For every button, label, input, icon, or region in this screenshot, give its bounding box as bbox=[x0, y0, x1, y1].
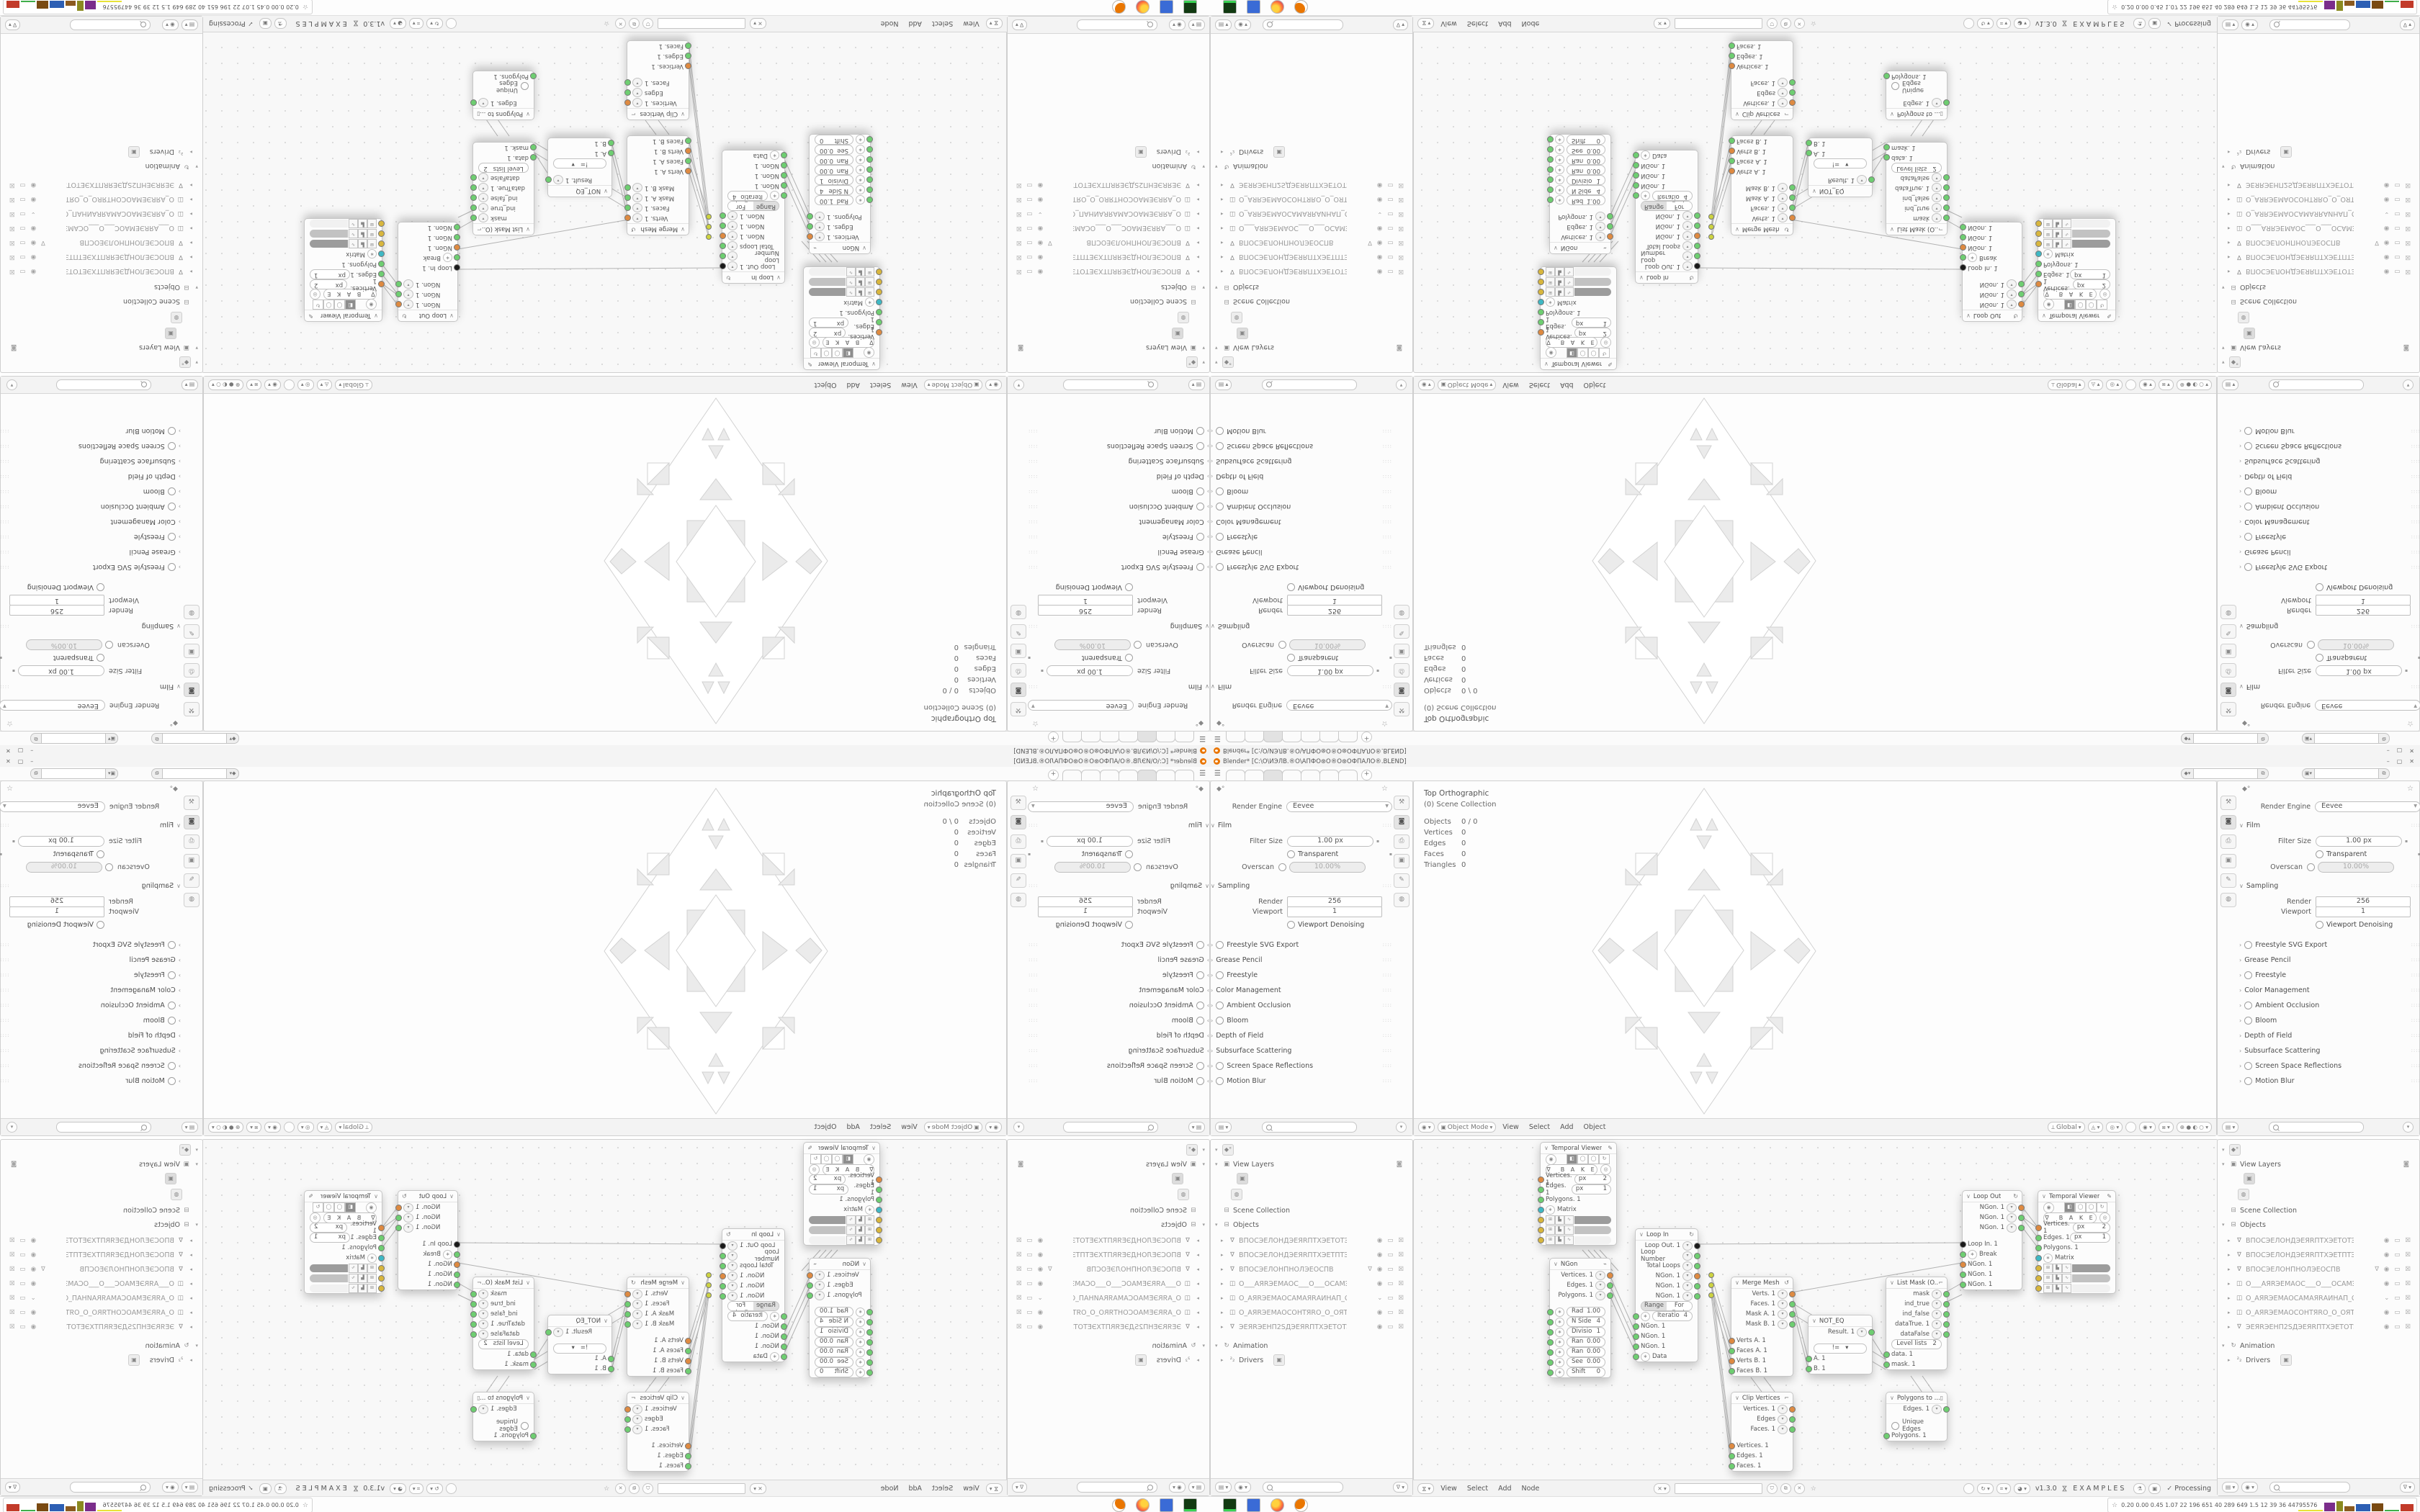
pin-icon[interactable]: ☆ bbox=[1811, 1485, 1816, 1493]
disable-viewport-icon[interactable]: ▭ bbox=[20, 1323, 26, 1331]
collapsed-section[interactable]: Motion Blur bbox=[1154, 428, 1193, 436]
overscan-checkbox[interactable] bbox=[1278, 863, 1286, 871]
render-engine-dropdown[interactable]: Eevee▾ bbox=[2315, 801, 2420, 812]
scene-icon[interactable]: ✎ bbox=[184, 873, 200, 888]
scene-icon[interactable]: ✎ bbox=[1010, 873, 1026, 888]
object-name[interactable]: О_АЯRЭЕМАОСОНТЯRО_О_ОЯТН- bbox=[1073, 1309, 1181, 1317]
filter-button[interactable]: ∇ ▾ bbox=[1012, 19, 1027, 30]
sampling-section[interactable]: Sampling bbox=[2246, 623, 2278, 631]
collapsed-section[interactable]: Depth of Field bbox=[2244, 473, 2292, 481]
node-ngon[interactable]: ∨NGon⌁Vertices. 1▾Edges. 1▾Polygons. 1▾∗… bbox=[1549, 1258, 1611, 1378]
exclude-icon[interactable]: ☒ bbox=[2405, 225, 2411, 232]
disable-viewport-icon[interactable]: ▭ bbox=[1027, 196, 1033, 203]
hide-icon[interactable]: ⌄ bbox=[31, 210, 36, 217]
object-name[interactable]: ЭЕЯRЭЕНП2SДЭЕЯRПТХЭЕТОТЭЕ bbox=[2246, 1323, 2354, 1331]
disable-viewport-icon[interactable]: ▭ bbox=[20, 1309, 26, 1316]
node-loop-in[interactable]: ∨Loop In↻Loop Out. 1▾Loop Number▾Total L… bbox=[722, 150, 785, 284]
collapsed-section[interactable]: Freestyle bbox=[1162, 534, 1193, 541]
world-icon[interactable]: ◍ bbox=[184, 605, 200, 619]
collapsed-section[interactable]: Freestyle SVG Export bbox=[93, 564, 165, 572]
collapsed-section[interactable]: Freestyle bbox=[1227, 971, 1258, 979]
node-loop-in[interactable]: ∨Loop In↻Loop Out. 1▾Loop Number▾Total L… bbox=[1635, 150, 1698, 284]
collapsed-section[interactable]: Freestyle SVG Export bbox=[2255, 564, 2327, 572]
collapsed-section[interactable]: Screen Space Reflections bbox=[1107, 443, 1193, 451]
exclude-icon[interactable]: ☒ bbox=[1016, 1309, 1022, 1316]
node-editor[interactable]: ∨Temporal Viewer✎◉◧◯◯↻∇ B A K E◎Vertices… bbox=[1413, 1139, 2218, 1481]
editor-type-button[interactable]: ◉ ▾ bbox=[985, 379, 1002, 390]
node-menu-node[interactable]: Node bbox=[1522, 1485, 1540, 1493]
collapsed-section[interactable]: Depth of Field bbox=[2244, 1032, 2292, 1040]
node-tree-name-field[interactable] bbox=[658, 1483, 745, 1494]
drivers-label[interactable]: Drivers bbox=[1157, 148, 1181, 156]
collapsed-section[interactable]: Depth of Field bbox=[1157, 473, 1204, 481]
collapsed-section[interactable]: Freestyle SVG Export bbox=[1121, 564, 1193, 572]
transparent-checkbox[interactable] bbox=[2316, 850, 2323, 858]
render-samples-field[interactable]: 256 bbox=[2316, 606, 2411, 616]
add-workspace-button[interactable]: + bbox=[1361, 732, 1372, 742]
render-engine-dropdown[interactable]: Eevee▾ bbox=[1286, 701, 1392, 711]
node-temporal-viewer[interactable]: ∨Temporal Viewer✎◉◧◯◯↻∇ B A K E◎Vertices… bbox=[304, 1190, 382, 1294]
section-checkbox[interactable] bbox=[1216, 1062, 1224, 1070]
collapsed-section[interactable]: Bloom bbox=[1227, 488, 1248, 496]
node-temporal-viewer[interactable]: ∨Temporal Viewer✎◉◧◯◯↻∇ B A K E◎Vertices… bbox=[304, 218, 382, 322]
view-layers-label[interactable]: View Layers bbox=[2240, 344, 2281, 352]
world-icon[interactable]: ◍ bbox=[171, 1189, 182, 1200]
filter-size-field[interactable]: 1.00 px bbox=[1287, 836, 1373, 847]
hide-icon[interactable]: ◉ bbox=[1038, 1237, 1043, 1244]
copy-icon[interactable]: ⧉ bbox=[30, 734, 41, 744]
viewport-menu-add[interactable]: Add bbox=[846, 381, 859, 389]
copy-icon[interactable]: ⧉ bbox=[2258, 768, 2269, 779]
section-checkbox[interactable] bbox=[1196, 534, 1204, 541]
scene-icon[interactable]: ✎ bbox=[2220, 873, 2236, 888]
node-ngon[interactable]: ∨NGon⌁Vertices. 1▾Edges. 1▾Polygons. 1▾∗… bbox=[809, 134, 871, 254]
object-name[interactable]: ЭЕЯRЭЕНП2SДЭЕЯRПТХЭЕТОТЭЕ bbox=[66, 1323, 174, 1331]
viewlayer-icon[interactable]: ▣ bbox=[2220, 854, 2236, 868]
disable-viewport-icon[interactable]: ▭ bbox=[20, 196, 26, 203]
node-ngon[interactable]: ∨NGon⌁Vertices. 1▾Edges. 1▾Polygons. 1▾∗… bbox=[809, 1258, 871, 1378]
section-checkbox[interactable] bbox=[2244, 971, 2252, 979]
collapsed-section[interactable]: Motion Blur bbox=[1227, 1077, 1265, 1085]
viewport-3d[interactable]: Top Orthographic (0) Scene Collection Ob… bbox=[1413, 376, 2217, 732]
hide-icon[interactable]: ⌄ bbox=[2384, 1295, 2389, 1302]
node-menu-select[interactable]: Select bbox=[932, 1485, 953, 1493]
editor-type-button[interactable]: ▤ ▾ bbox=[2222, 19, 2238, 30]
hide-icon[interactable]: ◉ bbox=[1038, 239, 1043, 246]
viewport-samples-field[interactable]: 1 bbox=[1038, 595, 1133, 606]
exclude-icon[interactable]: ☒ bbox=[2405, 1266, 2411, 1273]
exclude-icon[interactable]: ☒ bbox=[9, 1251, 15, 1259]
disable-viewport-icon[interactable]: ▭ bbox=[1387, 268, 1393, 275]
render-engine-dropdown[interactable]: Eevee▾ bbox=[1028, 701, 1134, 711]
node-editor[interactable]: ∨Temporal Viewer✎◉◧◯◯↻∇ B A K E◎Vertices… bbox=[202, 31, 1007, 373]
display-mode-button[interactable]: ◉ ▾ bbox=[1234, 1482, 1251, 1493]
disable-viewport-icon[interactable]: ▭ bbox=[1027, 1280, 1033, 1287]
workspace-tab[interactable] bbox=[1081, 732, 1101, 742]
disable-viewport-icon[interactable]: ▭ bbox=[20, 1295, 26, 1302]
hide-icon[interactable]: ◉ bbox=[2384, 1309, 2389, 1316]
object-name[interactable]: ЭЕЯRЭЕНП2SДЭЕЯRПТХЭЕТОТЭЕ bbox=[1073, 1323, 1181, 1331]
object-name[interactable]: О___АЯRЭЕМАОС___О___ОСАМЭ bbox=[1239, 1280, 1347, 1288]
viewport-menu-add[interactable]: Add bbox=[846, 1123, 859, 1131]
taskbar-blender-icon[interactable] bbox=[1112, 1498, 1126, 1512]
collapsed-section[interactable]: Ambient Occlusion bbox=[2255, 1002, 2319, 1009]
section-checkbox[interactable] bbox=[2244, 941, 2252, 949]
object-name[interactable]: ЭЕЯRЭЕНП2SДЭЕЯRПТХЭЕТОТЭЕ bbox=[66, 181, 174, 189]
hide-icon[interactable]: ◉ bbox=[1038, 1280, 1043, 1287]
objects-label[interactable]: Objects bbox=[1161, 284, 1187, 292]
node-merge-mesh[interactable]: ∨Merge Mesh↺Verts. 1▾Faces. 1▾Mask A. 1▾… bbox=[1731, 135, 1793, 235]
object-name[interactable]: О___АЯRЭЕМАОС___О___ОСАМЭ bbox=[2246, 225, 2354, 233]
hide-icon[interactable]: ◉ bbox=[1377, 1266, 1382, 1273]
node-merge-mesh[interactable]: ∨Merge Mesh↺Verts. 1▾Faces. 1▾Mask A. 1▾… bbox=[627, 1277, 689, 1377]
animation-label[interactable]: Animation bbox=[1233, 163, 1268, 171]
objects-label[interactable]: Objects bbox=[2240, 284, 2266, 292]
exclude-icon[interactable]: ☒ bbox=[1016, 1251, 1022, 1259]
viewlayer-selector[interactable]: ▣▾⧉ bbox=[2302, 768, 2390, 778]
hide-icon[interactable]: ◉ bbox=[31, 1280, 36, 1287]
collapsed-section[interactable]: Subsurface Scattering bbox=[1216, 1047, 1291, 1055]
hide-icon[interactable]: ⌄ bbox=[1377, 1295, 1382, 1302]
object-name[interactable]: ВПОСЭЕЛОНДЭЕЯRПТХЭЕТПТЭЕХ bbox=[66, 253, 174, 261]
copy-icon[interactable]: ⧉ bbox=[151, 768, 162, 779]
render-samples-field[interactable]: 256 bbox=[9, 896, 104, 907]
hide-icon[interactable]: ◉ bbox=[2384, 1266, 2389, 1273]
node-clip-vertices[interactable]: ∨Clip Vertices⌐Vertices. 1▾Edges▾Faces. … bbox=[1731, 1392, 1793, 1472]
viewlayer-selector[interactable]: ▣▾⧉ bbox=[30, 734, 118, 744]
orientation-dropdown[interactable]: ⟂ Global ▾ bbox=[2048, 1122, 2085, 1133]
copy-button[interactable]: ⧉ bbox=[1780, 1483, 1791, 1494]
render-icon[interactable]: ◙ bbox=[2220, 815, 2236, 829]
overlays-toggle[interactable]: ◉ ▾ bbox=[264, 1122, 281, 1133]
collapsed-section[interactable]: Freestyle SVG Export bbox=[1121, 941, 1193, 949]
node-list-mask-o-[interactable]: ∨List Mask (O..⌐mask▾ind_true▾ind_false▾… bbox=[1886, 142, 1948, 235]
section-checkbox[interactable] bbox=[168, 1002, 176, 1009]
workspace-tab[interactable] bbox=[1319, 770, 1339, 780]
snap-button[interactable]: ◬ ▾ bbox=[317, 1122, 333, 1133]
search-input[interactable] bbox=[2269, 19, 2350, 30]
disable-viewport-icon[interactable]: ▭ bbox=[2394, 1280, 2400, 1287]
object-name[interactable]: ВПОСЭЕЛОНДЭЕЯRПТХЭЕТОТЭЕ) bbox=[1073, 1237, 1181, 1245]
object-name[interactable]: ВПОСЭЕЛОНПНОЛЭЕОСПВ bbox=[80, 239, 175, 247]
view-layers-label[interactable]: View Layers bbox=[1233, 1161, 1274, 1169]
minimize-button[interactable]: – bbox=[30, 758, 33, 765]
tree-type-button[interactable]: ✕ ▾ bbox=[1654, 18, 1670, 29]
collapsed-section[interactable]: Motion Blur bbox=[125, 428, 164, 436]
shading-modes[interactable]: ⊕ ● ◐ ○ ▾ bbox=[208, 379, 243, 390]
filter-size-field[interactable]: 1.00 px bbox=[1047, 836, 1133, 847]
exclude-icon[interactable]: ☒ bbox=[9, 1280, 15, 1287]
fake-user-button[interactable]: ⛉ bbox=[1767, 1483, 1778, 1494]
snap-grid-button[interactable]: ⌗ ▾ bbox=[409, 18, 423, 29]
taskbar-blender-icon[interactable] bbox=[1112, 0, 1126, 14]
scene-icon[interactable]: ✎ bbox=[184, 624, 200, 639]
workspace-tab[interactable] bbox=[1301, 732, 1320, 742]
snap-grid-button[interactable]: ⌗ ▾ bbox=[409, 1483, 423, 1494]
mode-dropdown[interactable]: ▣ Object Mode ▾ bbox=[924, 1122, 983, 1133]
render-engine-dropdown[interactable]: Eevee▾ bbox=[0, 701, 105, 711]
section-checkbox[interactable] bbox=[168, 971, 176, 979]
world-icon[interactable]: ◍ bbox=[171, 312, 182, 323]
object-name[interactable]: ВПОСЭЕЛОНДЭЕЯRПТХЭЕТПТЭЕХ bbox=[66, 1251, 174, 1259]
render-engine-dropdown[interactable]: Eevee▾ bbox=[0, 801, 105, 812]
section-checkbox[interactable] bbox=[2244, 1002, 2252, 1009]
collapsed-section[interactable]: Color Management bbox=[1139, 986, 1204, 994]
disable-viewport-icon[interactable]: ▭ bbox=[1387, 1280, 1393, 1287]
drivers-label[interactable]: Drivers bbox=[2246, 148, 2270, 156]
object-name[interactable]: ВПОСЭЕЛОНПНОЛЭЕОСПВ bbox=[80, 1266, 175, 1274]
exclude-icon[interactable]: ☒ bbox=[1016, 1237, 1022, 1244]
collapsed-section[interactable]: Subsurface Scattering bbox=[100, 458, 176, 466]
workspace-tab[interactable] bbox=[1263, 732, 1283, 742]
disable-viewport-icon[interactable]: ▭ bbox=[1027, 225, 1033, 232]
object-name[interactable]: О___АЯRЭЕМАОС___О___ОСАМЭ bbox=[2246, 1280, 2354, 1288]
object-name[interactable]: ВПОСЭЕЛОНДЭЕЯRПТХЭЕТОТЭЕ) bbox=[1073, 268, 1181, 276]
section-checkbox[interactable] bbox=[1216, 503, 1224, 511]
exclude-icon[interactable]: ☒ bbox=[1016, 210, 1022, 217]
node-tree-name-field[interactable] bbox=[1675, 1483, 1762, 1494]
section-checkbox[interactable] bbox=[1216, 941, 1224, 949]
disable-viewport-icon[interactable]: ▭ bbox=[20, 268, 26, 275]
object-name[interactable]: О_АЯRЭЕМАОСАМАЯRАИНАП_С bbox=[1073, 1295, 1181, 1302]
hide-icon[interactable]: ◉ bbox=[2384, 268, 2389, 275]
exclude-icon[interactable]: ☒ bbox=[1398, 1280, 1404, 1287]
object-name[interactable]: О_АЯRЭЕМАОСОНТЯRО_О_ОЯТН- bbox=[1239, 1309, 1347, 1317]
section-checkbox[interactable] bbox=[1196, 564, 1204, 572]
disable-viewport-icon[interactable]: ▭ bbox=[1387, 239, 1393, 246]
filter-size-field[interactable]: 1.00 px bbox=[1047, 666, 1133, 677]
hide-icon[interactable]: ⌄ bbox=[1038, 1295, 1043, 1302]
search-input[interactable] bbox=[1063, 1122, 1158, 1133]
overscan-field[interactable]: 10.00% bbox=[1054, 862, 1131, 873]
editor-type-button[interactable]: ▤ ▾ bbox=[181, 1482, 198, 1493]
denoising-checkbox[interactable] bbox=[1125, 921, 1133, 929]
render-samples-field[interactable]: 256 bbox=[9, 606, 104, 616]
disable-viewport-icon[interactable]: ▭ bbox=[2394, 1323, 2400, 1331]
scene-collection-label[interactable]: Scene Collection bbox=[2240, 1207, 2297, 1215]
shading-modes[interactable]: ⊕ ● ◐ ○ ▾ bbox=[2177, 379, 2212, 390]
sampling-section[interactable]: Sampling bbox=[1170, 882, 1202, 890]
scene-collection-label[interactable]: Scene Collection bbox=[1130, 1207, 1187, 1215]
menu-icon[interactable]: ☰ bbox=[1214, 734, 1221, 742]
orientation-dropdown[interactable]: ⟂ Global ▾ bbox=[335, 379, 372, 390]
viewport-samples-field[interactable]: 1 bbox=[2316, 906, 2411, 917]
hide-icon[interactable]: ◉ bbox=[31, 1323, 36, 1331]
hide-icon[interactable]: ◉ bbox=[31, 239, 36, 246]
menu-icon[interactable]: ☰ bbox=[1199, 734, 1206, 742]
maximize-button[interactable]: ▢ bbox=[18, 758, 24, 765]
node-menu-add[interactable]: Add bbox=[1498, 19, 1511, 27]
exclude-icon[interactable]: ☒ bbox=[1398, 268, 1404, 275]
viewport-menu-object[interactable]: Object bbox=[1584, 381, 1606, 389]
collapsed-section[interactable]: Motion Blur bbox=[125, 1077, 164, 1085]
copy-icon[interactable]: ⧉ bbox=[2379, 768, 2390, 779]
section-checkbox[interactable] bbox=[1216, 971, 1224, 979]
section-checkbox[interactable] bbox=[1196, 1002, 1204, 1009]
editor-type-button[interactable]: ▤ ▾ bbox=[1215, 379, 1232, 390]
options-button[interactable]: ▾ bbox=[1013, 379, 1024, 390]
denoising-checkbox[interactable] bbox=[1125, 584, 1133, 592]
editor-type-button[interactable]: ▤ ▾ bbox=[181, 379, 198, 390]
object-name[interactable]: О_АЯRЭЕМАОСАМАЯRАИНАП_С bbox=[66, 210, 174, 218]
render-samples-field[interactable]: 256 bbox=[1038, 896, 1133, 907]
drivers-label[interactable]: Drivers bbox=[1239, 148, 1263, 156]
view-layers-label[interactable]: View Layers bbox=[1146, 1161, 1187, 1169]
scene-selector[interactable]: ◆▾⧉ bbox=[2181, 768, 2269, 778]
hide-icon[interactable]: ◉ bbox=[1038, 196, 1043, 203]
gizmo-toggle[interactable] bbox=[284, 1122, 295, 1133]
section-checkbox[interactable] bbox=[1196, 488, 1204, 496]
snap-grid-button[interactable]: ⌗ ▾ bbox=[1996, 1483, 2011, 1494]
search-input[interactable] bbox=[1263, 19, 1343, 30]
viewport-menu-add[interactable]: Add bbox=[1560, 381, 1573, 389]
collapsed-section[interactable]: Ambient Occlusion bbox=[1227, 1002, 1291, 1009]
editor-type-button[interactable]: ▤ ▾ bbox=[1215, 1482, 1232, 1493]
filter-size-field[interactable]: 1.00 px bbox=[2316, 666, 2402, 677]
overscan-field[interactable]: 10.00% bbox=[2318, 640, 2394, 651]
viewport-samples-field[interactable]: 1 bbox=[1287, 595, 1382, 606]
node-not-eq[interactable]: ∨NOT_EQResult. 1▾!=▾A. 1B. 1 bbox=[1808, 1315, 1873, 1374]
collapsed-section[interactable]: Motion Blur bbox=[2255, 428, 2294, 436]
node-polygons-to-[interactable]: ∨Polygons to ...▯Edges. 1▾Unique EdgesPo… bbox=[472, 71, 534, 120]
copy-icon[interactable]: ⧉ bbox=[2379, 734, 2390, 744]
view-layers-label[interactable]: View Layers bbox=[2240, 1161, 2281, 1169]
disable-viewport-icon[interactable]: ▭ bbox=[20, 239, 26, 246]
viewport-samples-field[interactable]: 1 bbox=[9, 595, 104, 606]
section-checkbox[interactable] bbox=[168, 564, 176, 572]
unlink-button[interactable]: ✕ bbox=[1794, 1483, 1805, 1494]
object-name[interactable]: ВПОСЭЕЛОНДЭЕЯRПТХЭЕТОТЭЕ) bbox=[2246, 268, 2354, 276]
taskbar-firefox-icon[interactable] bbox=[1270, 1498, 1284, 1512]
node-editor[interactable]: ∨Temporal Viewer✎◉◧◯◯↻∇ B A K E◎Vertices… bbox=[1413, 31, 2218, 373]
add-workspace-button[interactable]: + bbox=[1048, 732, 1059, 742]
taskbar-hwinfo64-icon[interactable] bbox=[1160, 0, 1173, 14]
node-ngon[interactable]: ∨NGon⌁Vertices. 1▾Edges. 1▾Polygons. 1▾∗… bbox=[1549, 134, 1611, 254]
sampling-section[interactable]: Sampling bbox=[1218, 623, 1250, 631]
sampling-section[interactable]: Sampling bbox=[142, 623, 174, 631]
object-name[interactable]: ВПОСЭЕЛОНПНОЛЭЕОСПВ bbox=[1239, 1266, 1334, 1274]
filter-button[interactable]: ∇ ▾ bbox=[2400, 1482, 2415, 1493]
collapsed-section[interactable]: Subsurface Scattering bbox=[2244, 1047, 2320, 1055]
section-checkbox[interactable] bbox=[2244, 1017, 2252, 1025]
collapsed-section[interactable]: Grease Pencil bbox=[1158, 956, 1204, 964]
mode-dropdown[interactable]: ▣ Object Mode ▾ bbox=[1438, 1122, 1497, 1133]
film-section[interactable]: Film bbox=[2246, 822, 2260, 829]
active-layer-icon[interactable]: ▣ bbox=[1237, 328, 1248, 339]
hide-icon[interactable]: ◉ bbox=[1038, 1266, 1043, 1273]
search-input[interactable] bbox=[56, 1122, 151, 1133]
section-checkbox[interactable] bbox=[2244, 443, 2252, 451]
hide-icon[interactable]: ⌄ bbox=[2384, 210, 2389, 217]
exclude-icon[interactable]: ☒ bbox=[1398, 1309, 1404, 1316]
node-loop-in[interactable]: ∨Loop In↻Loop Out. 1▾Loop Number▾Total L… bbox=[722, 1228, 785, 1362]
exclude-icon[interactable]: ☒ bbox=[1016, 1266, 1022, 1273]
collapsed-section[interactable]: Subsurface Scattering bbox=[1216, 458, 1291, 466]
object-name[interactable]: О___АЯRЭЕМАОС___О___ОСАМЭ bbox=[66, 225, 174, 233]
unlink-button[interactable]: ✕ bbox=[615, 18, 626, 29]
collapsed-section[interactable]: Depth of Field bbox=[1216, 473, 1263, 481]
menu-icon[interactable]: ☰ bbox=[1214, 770, 1221, 778]
hide-icon[interactable]: ◉ bbox=[31, 1237, 36, 1244]
object-name[interactable]: ВПОСЭЕЛОНДЭЕЯRПТХЭЕТОТЭЕ) bbox=[2246, 1237, 2354, 1245]
hide-icon[interactable]: ◉ bbox=[1377, 253, 1382, 261]
tool-icon[interactable]: ⚒ bbox=[1010, 702, 1026, 716]
hide-icon[interactable]: ◉ bbox=[1377, 1309, 1382, 1316]
output-icon[interactable]: ⎙ bbox=[1010, 834, 1026, 849]
collapsed-section[interactable]: Ambient Occlusion bbox=[1129, 1002, 1193, 1009]
search-input[interactable] bbox=[1077, 1482, 1157, 1493]
workspace-tab[interactable] bbox=[1100, 732, 1119, 742]
collapsed-section[interactable]: Color Management bbox=[1216, 518, 1281, 526]
node-menu-add[interactable]: Add bbox=[908, 19, 921, 27]
exclude-icon[interactable]: ☒ bbox=[1016, 268, 1022, 275]
disable-viewport-icon[interactable]: ▭ bbox=[1387, 1309, 1393, 1316]
collapsed-section[interactable]: Freestyle SVG Export bbox=[2255, 941, 2327, 949]
disable-viewport-icon[interactable]: ▭ bbox=[1387, 1251, 1393, 1259]
viewport-menu-select[interactable]: Select bbox=[870, 381, 891, 389]
hide-icon[interactable]: ◉ bbox=[1377, 1251, 1382, 1259]
object-name[interactable]: О_АЯRЭЕМАОСОНТЯRО_О_ОЯТН- bbox=[66, 196, 174, 204]
exclude-icon[interactable]: ☒ bbox=[2405, 1280, 2411, 1287]
hide-icon[interactable]: ◉ bbox=[31, 225, 36, 232]
exclude-icon[interactable]: ☒ bbox=[1398, 239, 1404, 246]
section-checkbox[interactable] bbox=[1196, 443, 1204, 451]
viewport-samples-field[interactable]: 1 bbox=[2316, 595, 2411, 606]
film-section[interactable]: Film bbox=[1188, 683, 1202, 691]
exclude-icon[interactable]: ☒ bbox=[2405, 181, 2411, 189]
exclude-icon[interactable]: ☒ bbox=[2405, 1251, 2411, 1259]
disable-viewport-icon[interactable]: ▭ bbox=[20, 1266, 26, 1273]
world-icon[interactable]: ◍ bbox=[1394, 605, 1410, 619]
search-input[interactable] bbox=[2269, 379, 2364, 390]
world-icon[interactable]: ◍ bbox=[2238, 312, 2249, 323]
section-checkbox[interactable] bbox=[168, 1017, 176, 1025]
view-layers-label[interactable]: View Layers bbox=[1146, 344, 1187, 352]
viewlayer-icon[interactable]: ▣ bbox=[1010, 854, 1026, 868]
object-name[interactable]: ВПОСЭЕЛОНДЭЕЯRПТХЭЕТОТЭЕ) bbox=[1239, 268, 1347, 276]
animation-label[interactable]: Animation bbox=[1152, 1342, 1187, 1350]
overscan-field[interactable]: 10.00% bbox=[1054, 640, 1131, 651]
disable-viewport-icon[interactable]: ▭ bbox=[1387, 210, 1393, 217]
hide-icon[interactable]: ◉ bbox=[31, 181, 36, 189]
workspace-tab[interactable] bbox=[1226, 732, 1245, 742]
collapsed-section[interactable]: Ambient Occlusion bbox=[1129, 503, 1193, 511]
hide-icon[interactable]: ◉ bbox=[31, 1266, 36, 1273]
hide-icon[interactable]: ◉ bbox=[2384, 181, 2389, 189]
disable-viewport-icon[interactable]: ▭ bbox=[1027, 1266, 1033, 1273]
overlays-toggle[interactable]: ◉ ▾ bbox=[2139, 1122, 2156, 1133]
fake-user-button[interactable]: ⛉ bbox=[642, 18, 653, 29]
editor-type-button[interactable]: ▤ ▾ bbox=[181, 1122, 198, 1133]
collapsed-section[interactable]: Bloom bbox=[1172, 488, 1193, 496]
section-checkbox[interactable] bbox=[1196, 1062, 1204, 1070]
parent-tree-button[interactable] bbox=[1963, 1483, 1974, 1494]
filter-size-field[interactable]: 1.00 px bbox=[2316, 836, 2402, 847]
exclude-icon[interactable]: ☒ bbox=[1016, 181, 1022, 189]
taskbar-gpu-monitor-icon[interactable] bbox=[1223, 0, 1237, 14]
objects-label[interactable]: Objects bbox=[1233, 284, 1259, 292]
filter-size-field[interactable]: 1.00 px bbox=[1287, 666, 1373, 677]
taskbar-firefox-icon[interactable] bbox=[1136, 1498, 1149, 1512]
node-clip-vertices[interactable]: ∨Clip Vertices⌐Vertices. 1▾Edges▾Faces. … bbox=[627, 1392, 689, 1472]
tool-icon[interactable]: ⚒ bbox=[1394, 702, 1410, 716]
section-checkbox[interactable] bbox=[2244, 488, 2252, 496]
active-layer-icon[interactable]: ▣ bbox=[1237, 1173, 1248, 1184]
section-checkbox[interactable] bbox=[168, 503, 176, 511]
active-layer-icon[interactable]: ▣ bbox=[1172, 1173, 1183, 1184]
xray-toggle[interactable]: ⧈ ▾ bbox=[2159, 1122, 2174, 1133]
viewlayer-icon[interactable]: ▣ bbox=[184, 854, 200, 868]
